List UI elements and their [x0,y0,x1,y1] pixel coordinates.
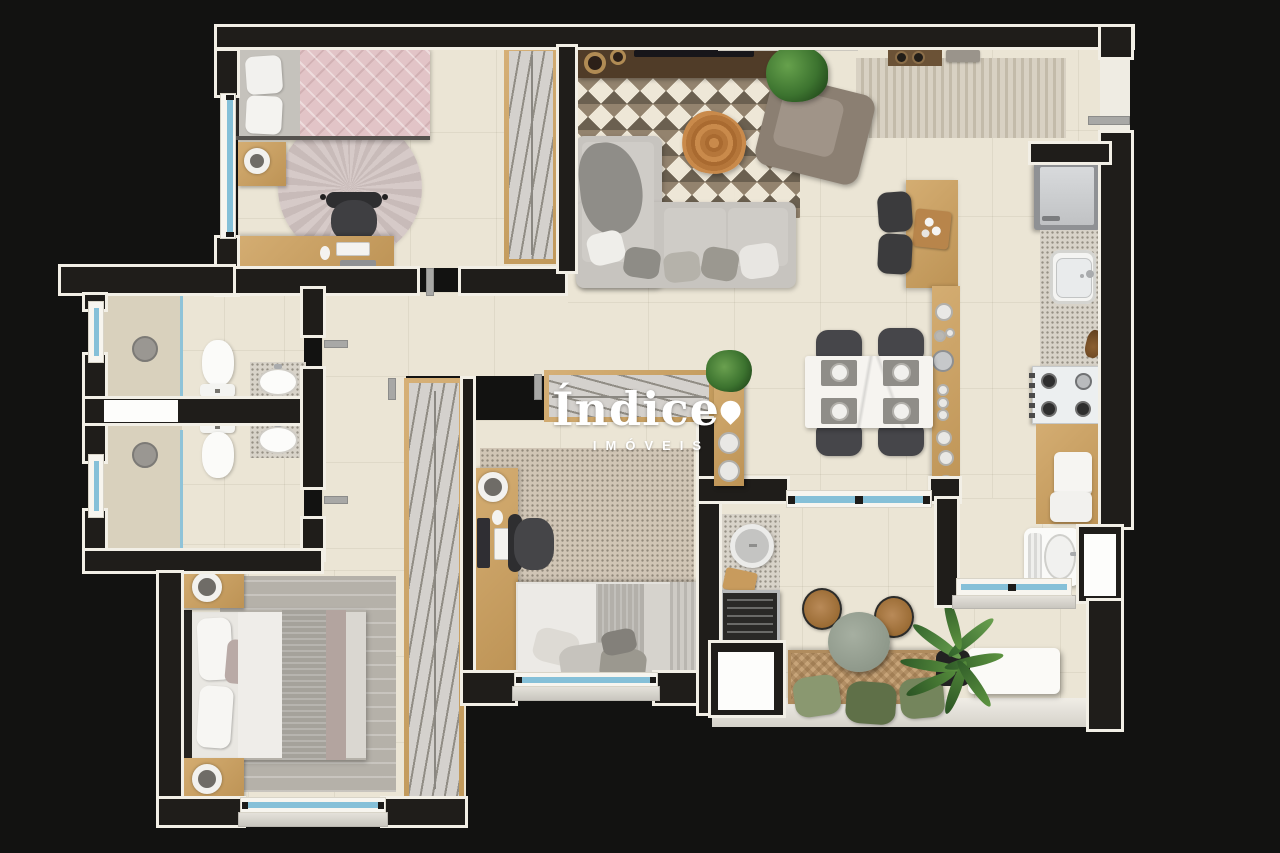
fridge [1034,162,1100,230]
faucet [274,364,282,369]
entry-striped-rug [856,58,1066,138]
towel-stack [1050,492,1092,522]
entry-shelf-items [946,50,980,62]
plate [938,450,954,466]
wall-middle-bottom-a [460,670,518,706]
door-master [388,378,396,400]
door-entry [1088,116,1130,125]
pillow-white [245,95,283,135]
brand-logo: Índice IMÓVEIS [552,386,742,453]
caster [382,194,388,200]
balcony-round-table [828,612,890,672]
mauve-strip [326,610,346,760]
bowl [937,384,949,396]
faucet [1086,270,1094,278]
kitchen-wood-counter [1036,424,1106,524]
plate [718,460,740,482]
window-glass [94,308,99,356]
toilet [200,420,236,478]
corridor-floor [322,376,406,576]
door-middle-bedroom [534,374,542,400]
wardrobe-shelves [509,51,553,259]
wall-kitchen-upper [1028,141,1112,165]
desk-lamp [478,472,508,502]
door-bathroom1 [324,340,348,348]
plate [936,430,952,446]
window-sill [512,686,660,701]
knobs [1029,373,1035,419]
table-lamp [192,764,222,794]
fridge-handle [1042,216,1060,221]
bar-stool [877,233,913,275]
single-bed-middle [516,582,706,678]
kitchen-island [906,180,958,288]
floor-plan: Índice IMÓVEIS [0,0,1280,853]
wall-bedroom-small-right [556,44,578,274]
basin [258,426,298,454]
living-plant [766,46,828,102]
shower-head [132,336,158,362]
window-glass [246,802,380,808]
window-glass [520,677,652,683]
double-bed [184,610,366,760]
serving-tray [912,208,952,250]
window-glass [94,461,99,511]
single-bed [236,48,430,140]
tv [634,50,754,57]
shelf-knob [912,51,925,64]
bowl [937,409,949,421]
shower-glass [180,292,183,398]
pink-duvet [300,48,430,140]
wall-master-left [156,570,184,824]
wall-bedroom-small-bottom-a [232,266,420,296]
burner [1041,373,1057,389]
pillow [196,685,234,749]
wall-wardrobe-side [460,376,476,678]
vanity [250,362,306,400]
window-glass [227,99,233,233]
pillow [663,250,702,284]
wall-bath-right-a [300,286,326,338]
pillow [622,246,662,281]
kitchen-counter-sink [1040,230,1106,368]
map-pin-icon [716,397,744,425]
vase [584,52,606,74]
vase [610,49,626,65]
bed-foot-line [236,136,430,140]
brand-name: Índice [552,386,720,432]
utility-shaft [718,652,774,710]
green-pillow [791,673,842,719]
window-sill [238,812,388,827]
cup [945,328,955,338]
caster [320,194,326,200]
mouse [320,246,330,260]
table-lamp [244,148,270,174]
washboard [1028,533,1042,581]
pot [932,350,954,372]
dining-chair [816,424,862,456]
shower-head [132,442,158,468]
pillow-white [245,55,284,95]
wall-bath-right-b [300,366,326,490]
door-bedroom-small [426,268,434,296]
wardrobe-bedroom-small [504,46,558,264]
door-bathroom2 [324,496,348,504]
basin [258,368,298,396]
blanket-light [644,584,670,676]
pillow [699,245,740,283]
wall-master-bottom-a [156,796,246,828]
shower-glass [180,430,183,552]
duct-niche [104,400,178,422]
bar-stool [877,191,914,233]
pillow [738,242,780,281]
dining-table [805,356,933,428]
burner [1075,401,1091,417]
hallway-floor [322,292,568,376]
burner [1041,401,1057,417]
wall-top [214,24,1135,50]
table-lamp [192,572,222,602]
monitor [477,518,490,568]
round-cooler [730,524,774,568]
tank-basin [1044,534,1076,580]
place-setting [883,398,919,424]
wall-master-bottom-b [380,796,468,828]
balcony-plant [898,612,1008,722]
brand-tagline: IMÓVEIS [552,438,742,453]
folded-edge [346,612,366,758]
wardrobe-master [404,378,464,802]
window-sill [952,595,1076,609]
mouse [492,510,503,525]
wardrobe-shelves [409,383,459,797]
towel-stack [1054,452,1092,496]
keyboard [336,242,370,256]
burner-moka-pot [1075,373,1092,390]
wall-bath-bottom [82,548,324,574]
office-chair-middle [508,508,556,582]
shelf-knob [895,51,908,64]
bowl [937,397,949,409]
place-setting [821,398,857,424]
wall-bedroom-small-bottom-b [458,266,568,296]
wall-left-bedroom-small-a [214,48,240,98]
runner-blanket [282,610,326,760]
wall-right-balcony [1086,598,1124,732]
kettle [935,303,953,321]
gourmet-counter [718,514,780,598]
wall-right-above-entry [1098,24,1134,60]
place-setting [883,360,919,386]
grill [720,590,780,646]
wall-right-main [1098,130,1134,530]
cooktop [1032,366,1100,424]
place-setting [821,360,857,386]
service-side-door [1084,534,1116,596]
chair-seat [514,518,554,570]
dining-chair [878,424,924,456]
toilet [200,340,236,398]
green-pillow [845,680,898,725]
